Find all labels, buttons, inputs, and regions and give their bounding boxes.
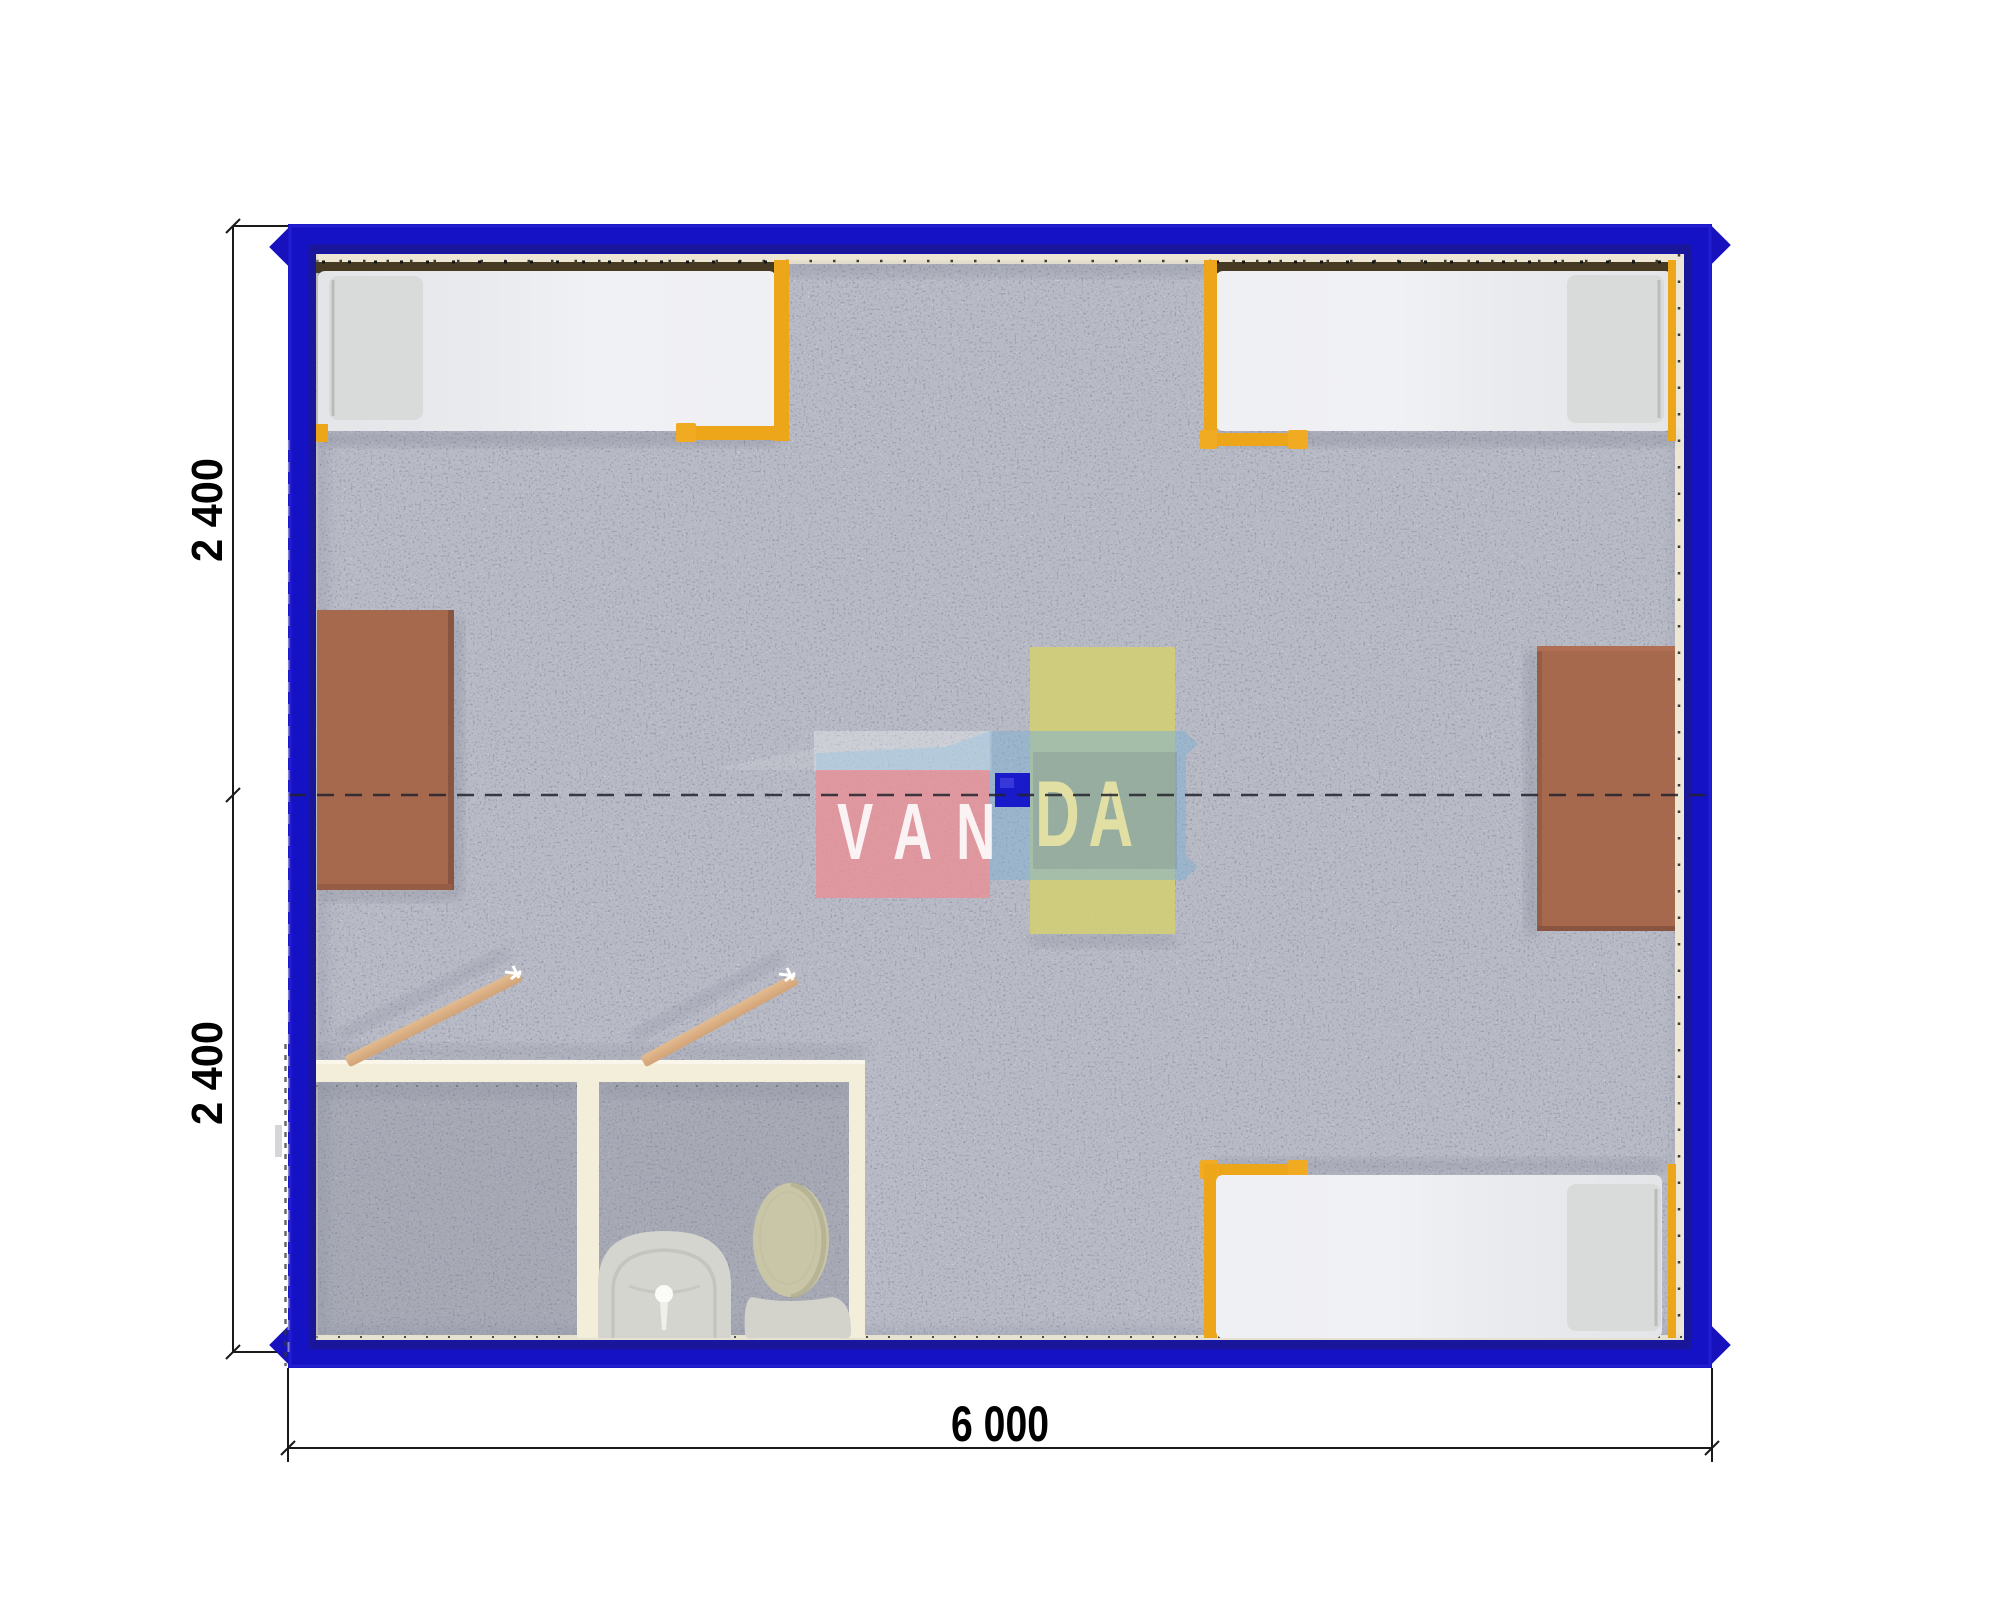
svg-text:6 000: 6 000 [951,1396,1049,1452]
svg-text:2 400: 2 400 [183,1021,232,1125]
svg-text:2 400: 2 400 [183,458,232,562]
svg-text:DA: DA [1035,761,1142,866]
svg-text:VAN: VAN [837,788,1019,877]
